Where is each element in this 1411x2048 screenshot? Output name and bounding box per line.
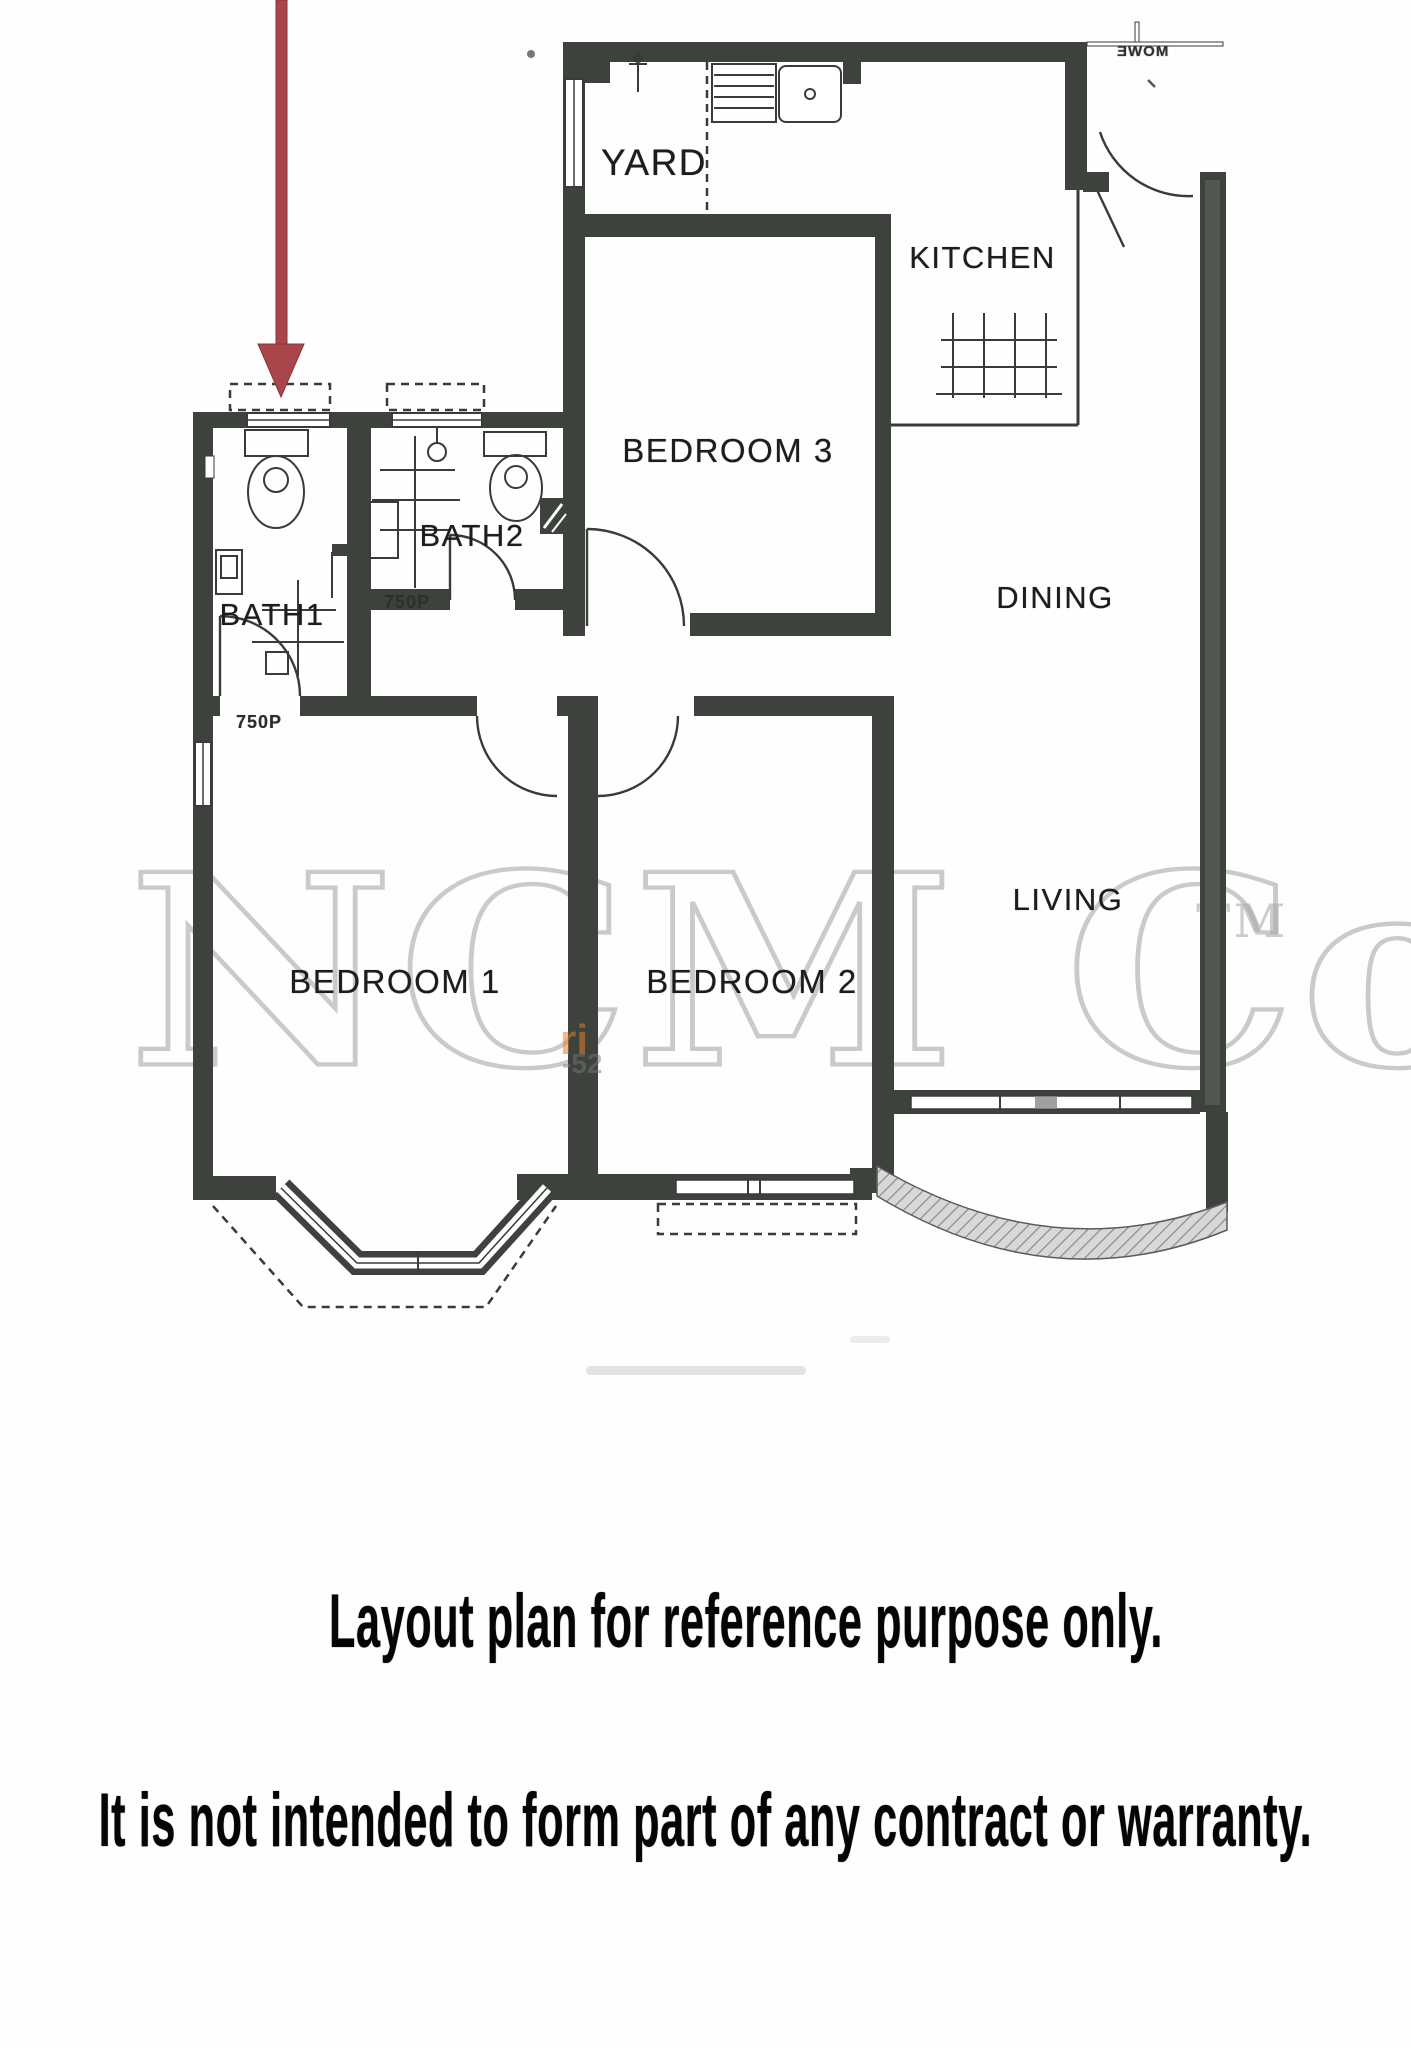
drain-label-bath2: 750P — [384, 592, 430, 613]
scan-streak-small — [850, 1336, 890, 1343]
room-label-yard: YARD — [594, 142, 714, 184]
room-label-dining: DINING — [990, 580, 1120, 616]
scan-streak — [586, 1366, 806, 1375]
room-label-bath2: BATH2 — [412, 518, 532, 554]
drain-label-bath1: 750P — [236, 712, 282, 733]
caption-line1-row: Layout plan for reference purpose only. — [0, 1576, 1411, 1662]
text-layer: YARD KITCHEN BEDROOM 3 DINING BATH2 BATH… — [0, 0, 1411, 2048]
caption-line1: Layout plan for reference purpose only. — [329, 1576, 1163, 1668]
room-label-bedroom2: BEDROOM 2 — [642, 963, 862, 1001]
watermark-fragment-gray: -52 — [562, 1048, 602, 1080]
room-label-bedroom3: BEDROOM 3 — [618, 432, 838, 470]
caption-line2: It is not intended to form part of any c… — [99, 1775, 1313, 1867]
room-label-living: LIVING — [1003, 882, 1133, 918]
room-label-kitchen: KITCHEN — [895, 240, 1070, 276]
neighbor-unit-text: ƎWOM — [1117, 43, 1169, 60]
room-label-bedroom1: BEDROOM 1 — [285, 963, 505, 1001]
room-label-bath1: BATH1 — [212, 597, 332, 633]
floor-plan-page: NCM Co TM — [0, 0, 1411, 2048]
caption-line2-row: It is not intended to form part of any c… — [0, 1775, 1411, 1861]
